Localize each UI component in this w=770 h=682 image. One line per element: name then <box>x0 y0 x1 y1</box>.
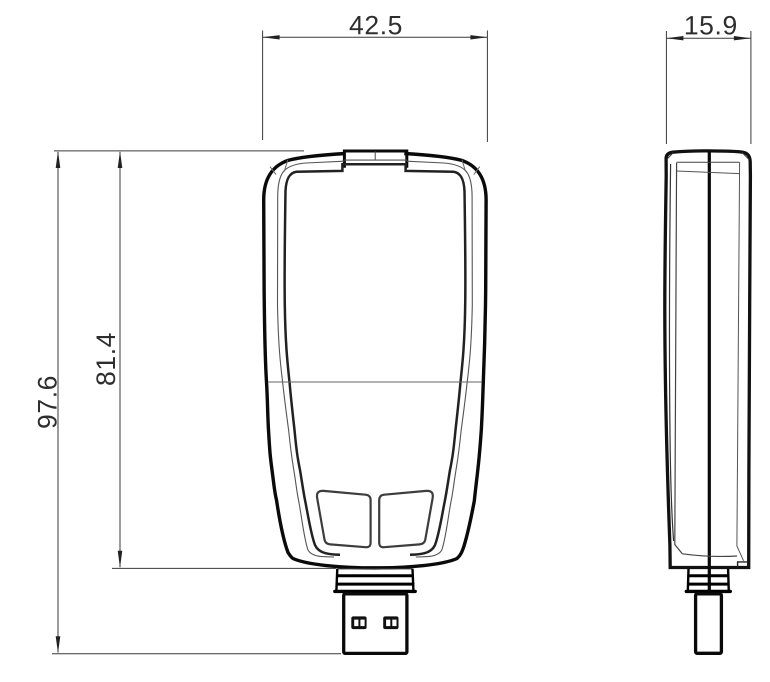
svg-text:81.4: 81.4 <box>91 332 121 386</box>
svg-text:42.5: 42.5 <box>349 10 403 40</box>
svg-text:15.9: 15.9 <box>684 10 738 40</box>
